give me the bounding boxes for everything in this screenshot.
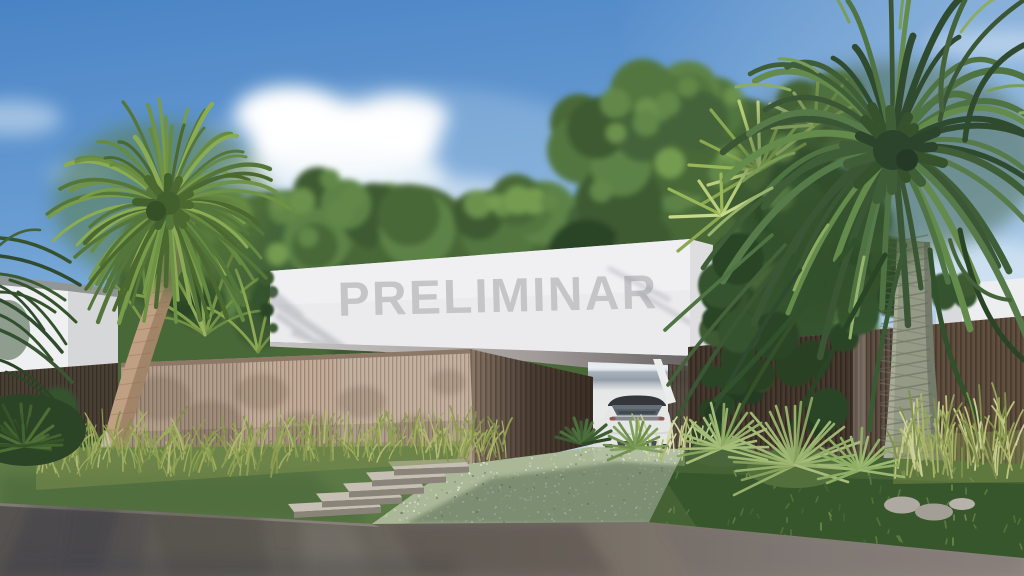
svg-text:PRELIMINAR: PRELIMINAR (337, 266, 659, 327)
